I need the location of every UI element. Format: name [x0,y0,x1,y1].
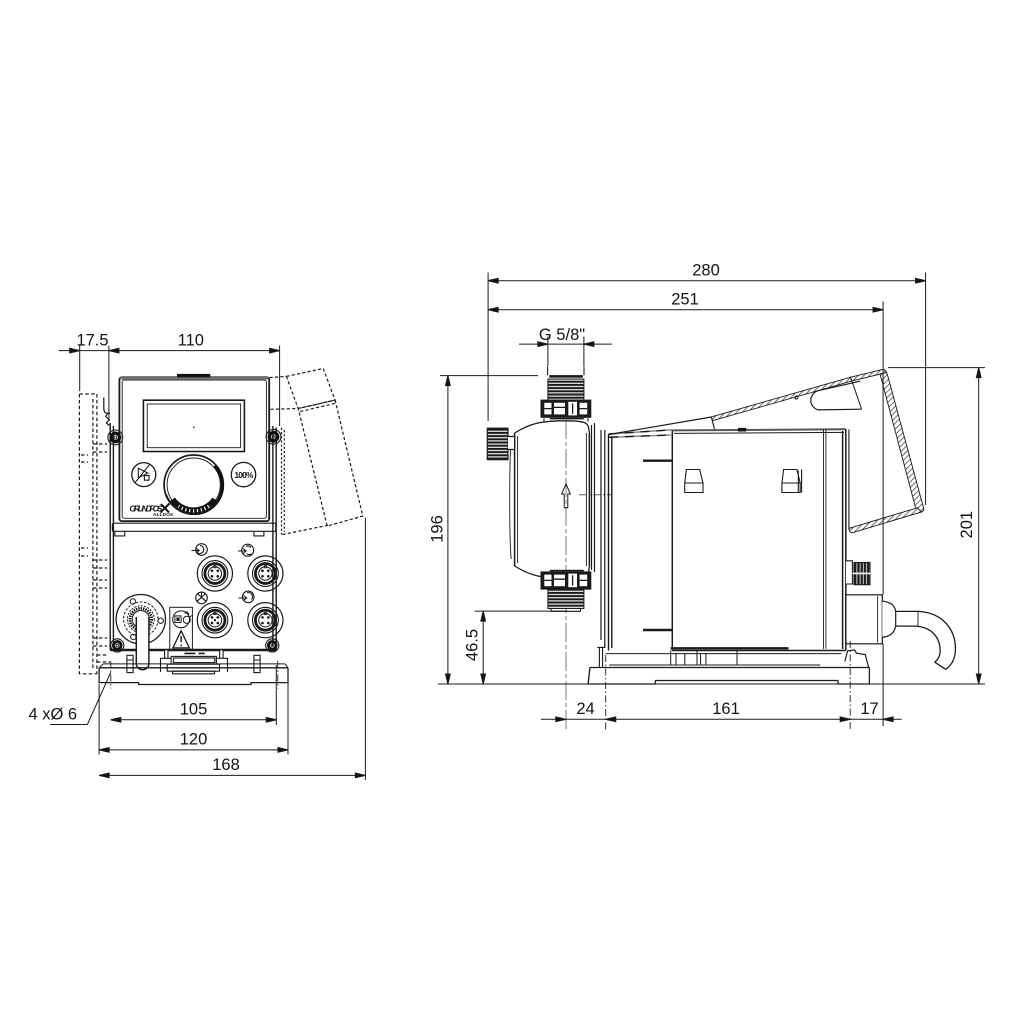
svg-text:46.5: 46.5 [464,629,482,661]
svg-text:4 xØ 6: 4 xØ 6 [29,706,78,724]
svg-text:ALLDOS: ALLDOS [153,512,174,518]
svg-text:100%: 100% [234,470,254,480]
svg-text:G 5/8": G 5/8" [539,326,585,344]
svg-text:105: 105 [180,701,208,719]
svg-text:17: 17 [860,700,878,718]
svg-text:17.5: 17.5 [76,332,108,350]
svg-text:110: 110 [178,332,204,350]
svg-text:196: 196 [429,515,447,543]
svg-text:201: 201 [958,511,976,539]
svg-text:120: 120 [180,731,208,749]
svg-text:168: 168 [212,756,240,774]
svg-text:24: 24 [576,700,594,718]
svg-text:251: 251 [671,291,699,309]
svg-text:161: 161 [712,700,740,718]
svg-text:280: 280 [692,262,720,280]
